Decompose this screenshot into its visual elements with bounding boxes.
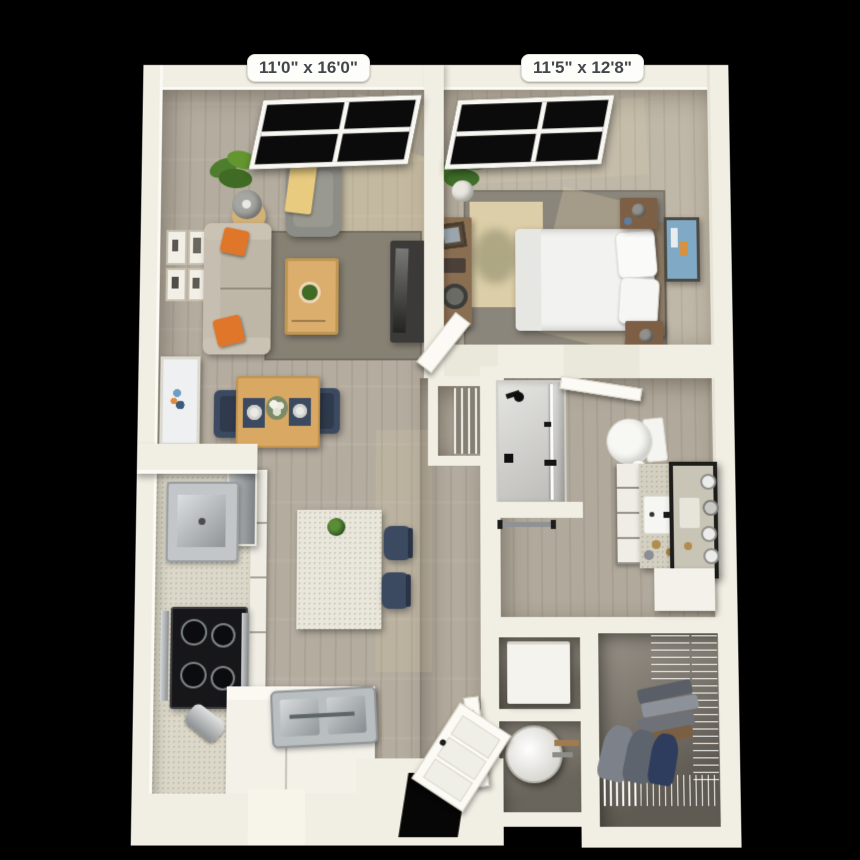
wire-shelving — [651, 635, 690, 684]
copper-pipe — [554, 740, 579, 746]
interior-wall — [498, 345, 564, 379]
frame-art — [172, 240, 178, 252]
framed-art — [159, 356, 200, 445]
apartment-plan — [0, 12, 860, 860]
washer-dryer-unit — [507, 641, 570, 703]
sconce-bulb — [703, 548, 719, 564]
shower-shelf — [544, 460, 556, 466]
wall-frame — [165, 268, 186, 301]
framed-art — [664, 217, 701, 281]
stool-back — [408, 528, 413, 558]
plant-leaf — [218, 167, 253, 189]
mirror-reflection — [679, 498, 700, 528]
frame-art — [680, 242, 688, 256]
sofa-seam — [220, 288, 271, 290]
sink-drain — [198, 518, 205, 525]
vanity-base-cabinet — [654, 568, 715, 611]
wire-shelving — [691, 635, 719, 783]
stool-back — [406, 574, 411, 606]
interior-wall-divider — [424, 65, 444, 356]
plant-shadow — [474, 229, 518, 284]
oven-handle — [160, 611, 169, 701]
basin-drain — [649, 512, 654, 517]
burner — [181, 619, 208, 645]
kitchen-half-wall — [137, 444, 258, 474]
walk-in-shower — [496, 380, 567, 506]
dining-table — [235, 376, 320, 448]
flower-vase — [266, 396, 288, 420]
bed-pillow — [618, 276, 660, 326]
plant-pot — [452, 180, 474, 201]
sconce-bulb — [703, 500, 719, 516]
sconce-bulb — [701, 526, 717, 542]
frame-art — [172, 277, 179, 289]
bed-pillow — [615, 230, 658, 279]
frame-art — [443, 227, 461, 244]
island-plant — [327, 518, 345, 536]
nightstand — [620, 198, 658, 229]
living-room-dimension-label: 11'0" x 16'0" — [247, 54, 370, 82]
burner — [211, 623, 236, 647]
bar-stool — [381, 572, 409, 608]
wall-step — [248, 789, 306, 845]
shower-glass-panel — [550, 384, 554, 500]
window-mullion — [261, 127, 411, 137]
frame-art — [192, 278, 199, 289]
frame-art — [671, 228, 678, 247]
bedroom-window — [444, 95, 614, 170]
toiletry-bottle — [644, 550, 654, 560]
toiletry-bottle — [652, 540, 661, 549]
stacked-books — [442, 258, 466, 273]
table-lamp — [639, 329, 653, 343]
towel-bar-end — [551, 520, 556, 529]
dinner-plate — [293, 404, 307, 418]
coffee-table — [285, 258, 339, 335]
bathroom-door-threshold — [564, 345, 640, 379]
pipe — [552, 752, 572, 757]
floor-lamp — [232, 190, 262, 219]
lamp-top — [242, 200, 251, 209]
table-lamp — [632, 204, 646, 218]
sconce-bulb — [700, 474, 716, 490]
frame-art — [169, 377, 186, 417]
towel-bar-end — [497, 520, 502, 529]
burner — [180, 662, 207, 689]
throw-pillow — [219, 227, 250, 257]
duvet-fold — [515, 229, 541, 331]
table-shelf-edge — [292, 320, 326, 322]
frame-art — [193, 238, 201, 254]
kitchen-main-sink — [270, 686, 378, 749]
shower-head — [514, 392, 524, 402]
kitchen-prep-sink — [166, 482, 240, 562]
coffee-table-plant — [302, 285, 318, 301]
towel-bar — [500, 522, 552, 527]
shower-half-wall — [496, 502, 583, 518]
interior-wall — [639, 345, 731, 379]
bar-stool — [384, 526, 412, 560]
dinner-plate — [247, 405, 262, 420]
floor-plan-render: { "title": "one-bedroom apartment 3D flo… — [0, 0, 860, 860]
wall-frame — [166, 230, 187, 265]
living-room-window — [249, 95, 422, 170]
decor-item — [624, 217, 632, 225]
toilet — [604, 413, 669, 467]
glass-hinge — [544, 422, 551, 427]
window-mullion — [456, 127, 604, 137]
kitchen-island — [296, 510, 381, 629]
bedroom-dimension-label: 11'5" x 12'8" — [521, 54, 644, 82]
decor-bowl — [442, 284, 468, 310]
mirror-reflection — [684, 542, 692, 550]
shower-drain — [504, 454, 513, 463]
